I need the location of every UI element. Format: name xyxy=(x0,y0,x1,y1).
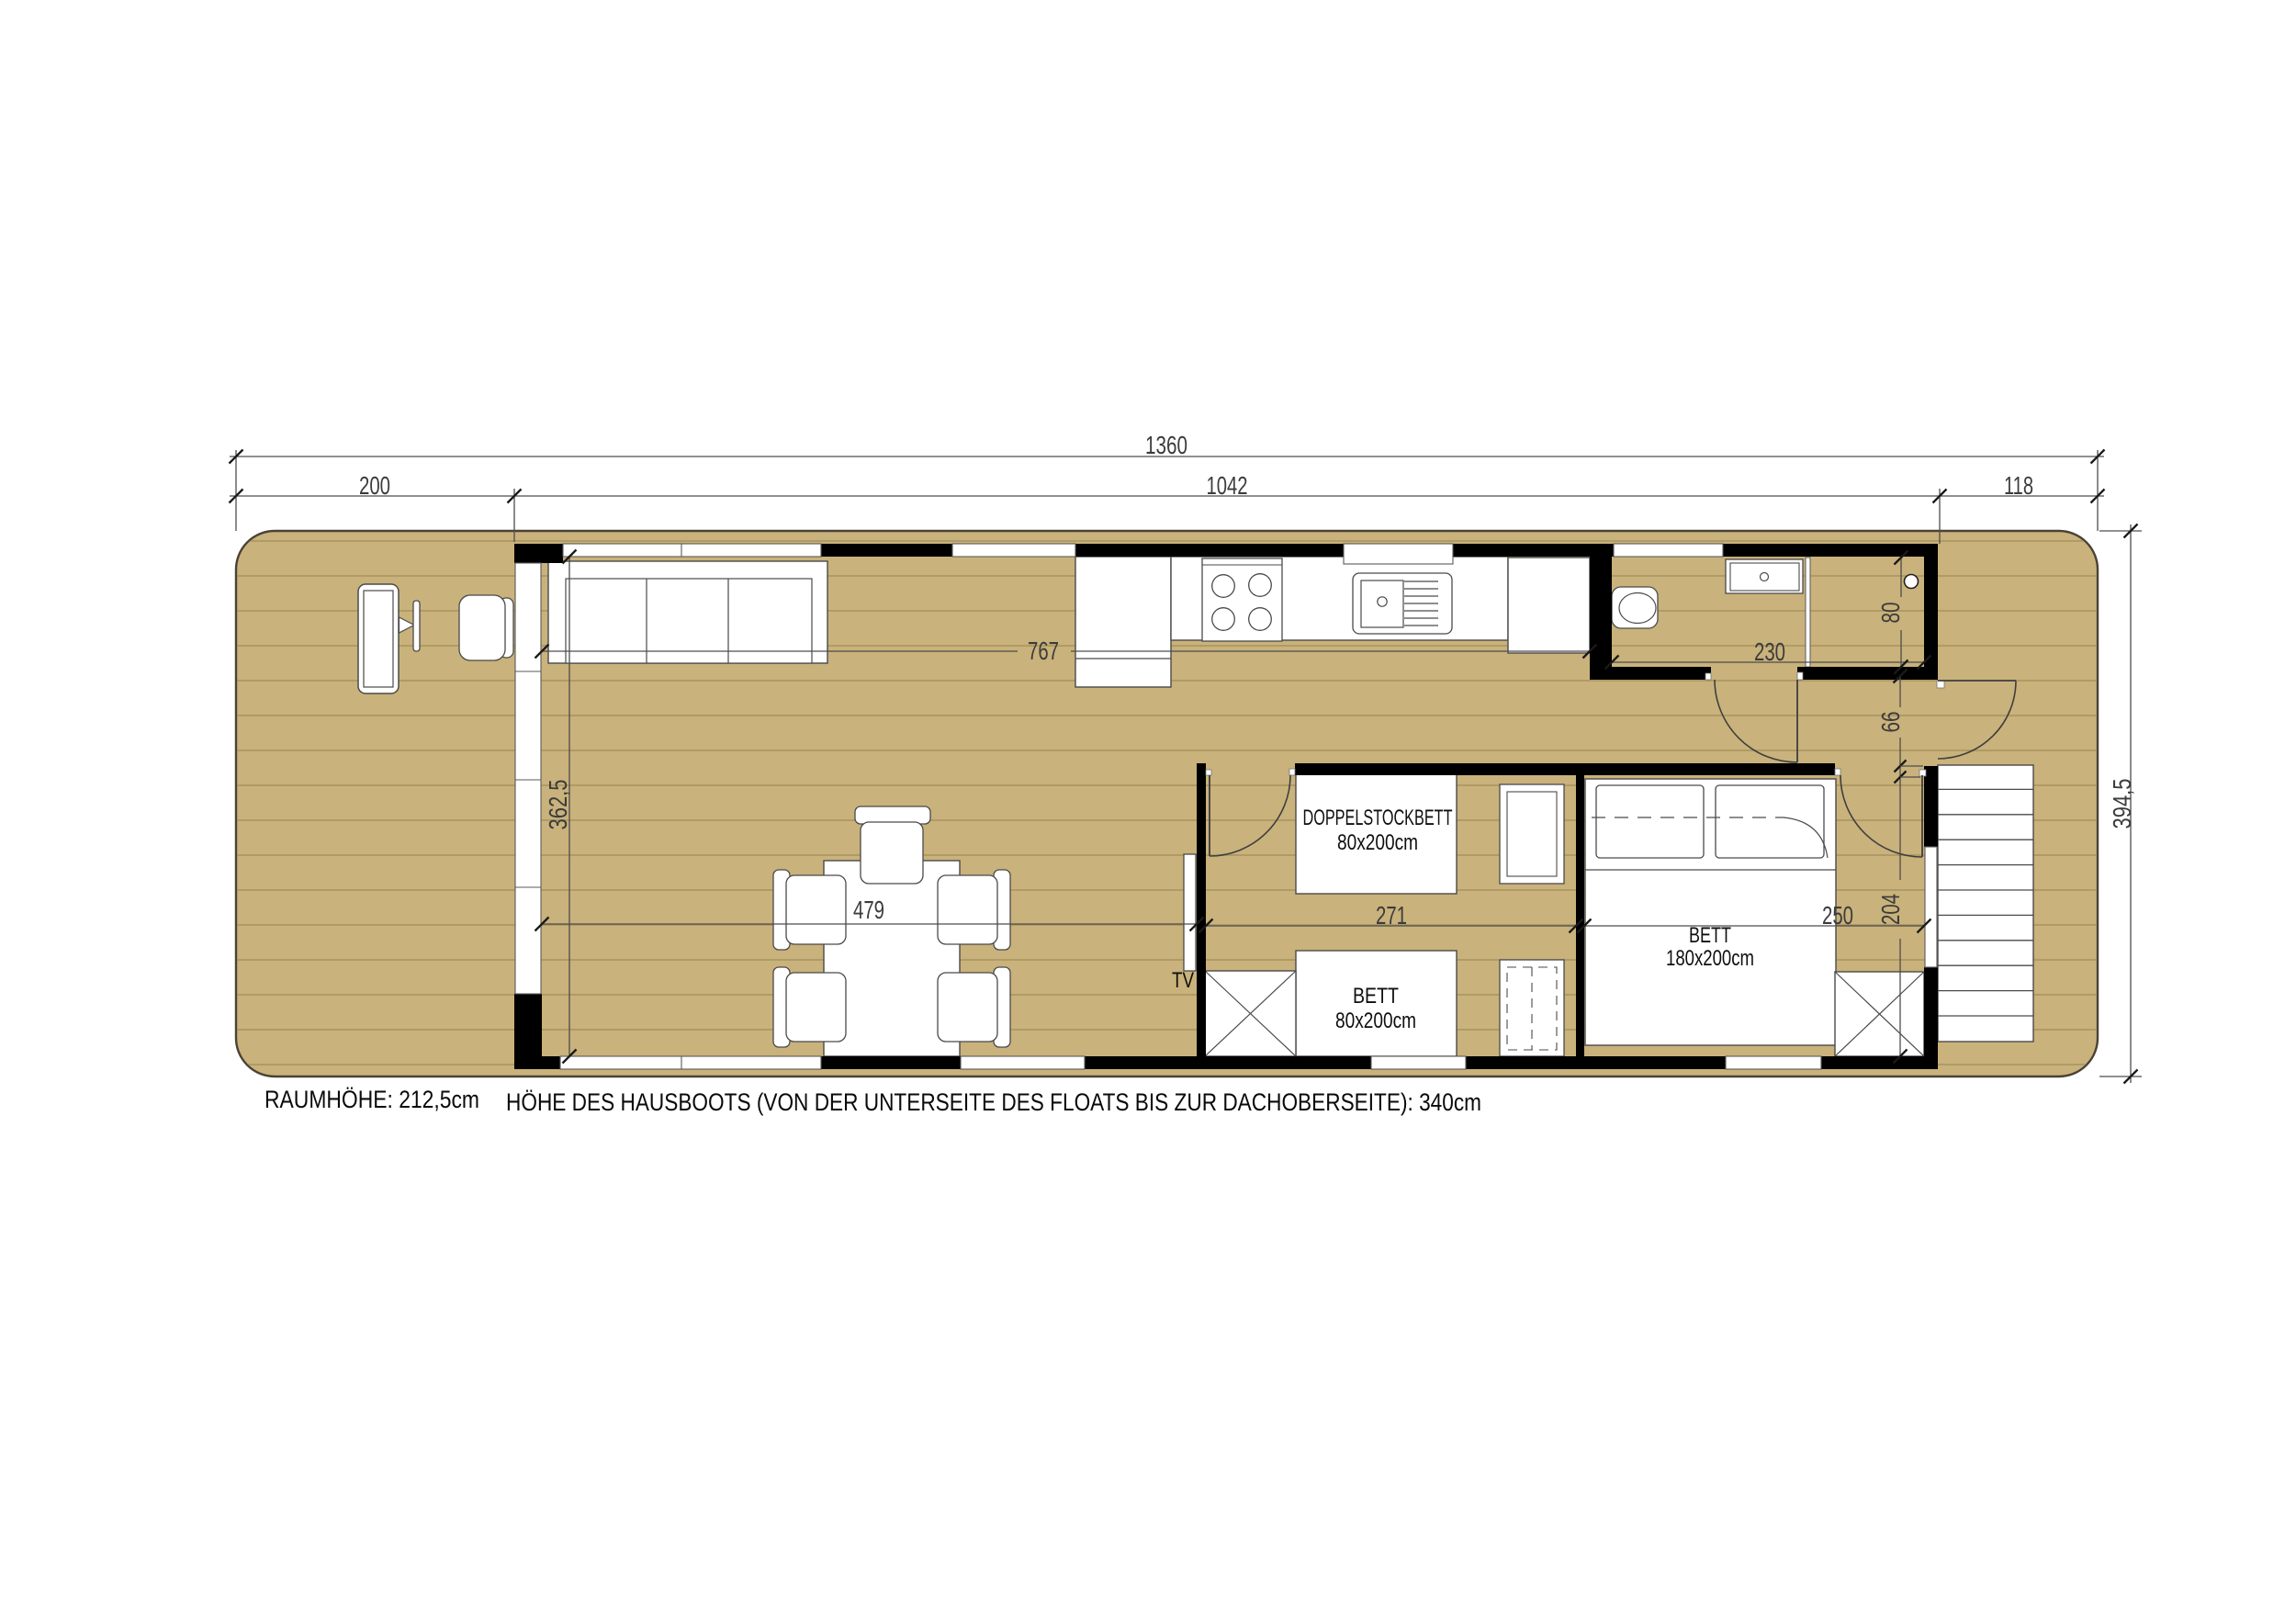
svg-text:1042: 1042 xyxy=(1207,471,1248,500)
svg-text:BETT: BETT xyxy=(1689,923,1731,948)
svg-text:DOPPELSTOCKBETT: DOPPELSTOCKBETT xyxy=(1303,806,1453,830)
svg-text:271: 271 xyxy=(1376,901,1407,930)
svg-text:479: 479 xyxy=(853,896,884,924)
svg-text:362,5: 362,5 xyxy=(544,780,572,830)
svg-text:200: 200 xyxy=(359,471,390,500)
svg-text:80x200cm: 80x200cm xyxy=(1337,830,1418,855)
svg-text:1360: 1360 xyxy=(1145,431,1187,459)
svg-text:RAUMHÖHE: 212,5cm: RAUMHÖHE: 212,5cm xyxy=(264,1086,479,1113)
svg-text:HÖHE DES HAUSBOOTS (VON DER UN: HÖHE DES HAUSBOOTS (VON DER UNTERSEITE D… xyxy=(506,1088,1481,1116)
svg-text:204: 204 xyxy=(1876,894,1905,925)
svg-text:767: 767 xyxy=(1028,637,1059,665)
svg-text:118: 118 xyxy=(2004,471,2033,500)
svg-text:230: 230 xyxy=(1754,637,1785,666)
svg-text:80x200cm: 80x200cm xyxy=(1335,1009,1416,1033)
svg-text:BETT: BETT xyxy=(1353,984,1399,1009)
svg-text:TV: TV xyxy=(1172,968,1194,993)
svg-text:80: 80 xyxy=(1876,603,1905,624)
svg-text:250: 250 xyxy=(1822,901,1853,930)
svg-text:180x200cm: 180x200cm xyxy=(1666,946,1754,971)
svg-text:394,5: 394,5 xyxy=(2108,779,2136,829)
svg-text:66: 66 xyxy=(1876,712,1905,733)
